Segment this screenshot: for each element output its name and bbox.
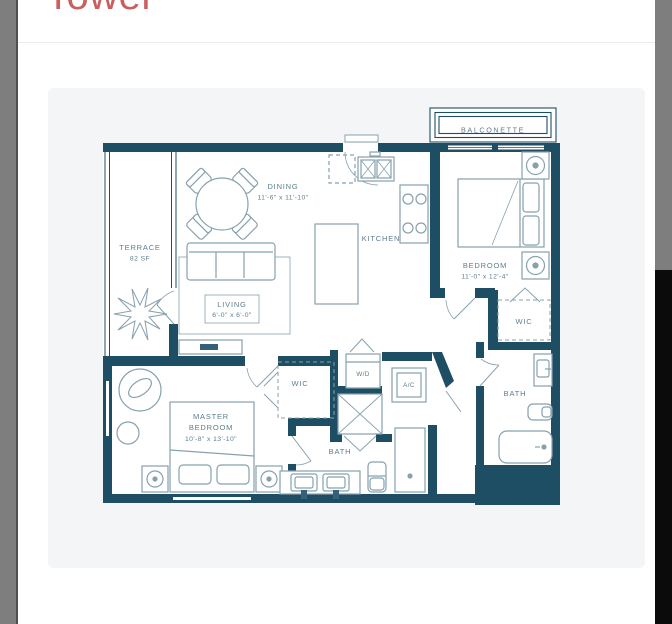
bed-icon bbox=[458, 179, 544, 247]
speaker-icon bbox=[522, 252, 549, 279]
wic-right-label: WIC bbox=[516, 317, 533, 326]
right-letterbox-bar-black bbox=[655, 270, 672, 624]
bathtub-icon bbox=[499, 431, 552, 463]
washer-dryer-label: W/D bbox=[356, 371, 370, 378]
master-bedroom-dims: 10'-8" x 13'-10" bbox=[185, 436, 237, 443]
floorplan-card: BALCONETTE bbox=[48, 88, 645, 568]
stove-icon bbox=[400, 185, 428, 243]
living-dims: 6'-0" x 6'-0" bbox=[212, 312, 252, 319]
bedroom-dims: 11'-0" x 12'-4" bbox=[461, 274, 508, 281]
wic-center-label: WIC bbox=[292, 379, 309, 388]
kitchen-label: KITCHEN bbox=[362, 234, 401, 243]
side-table-icon bbox=[117, 422, 139, 444]
left-letterbox-bar bbox=[0, 0, 18, 624]
ac-label: A/C bbox=[403, 382, 415, 389]
floorplan-image: BALCONETTE bbox=[48, 88, 645, 568]
terrace-area: 82 SF bbox=[130, 256, 150, 263]
kitchen-island bbox=[315, 224, 358, 304]
master-bedroom-label-1: MASTER bbox=[193, 412, 229, 421]
right-letterbox-bar-gray bbox=[655, 0, 672, 270]
master-bedroom-label-2: BEDROOM bbox=[189, 423, 233, 432]
sofa-icon bbox=[187, 243, 275, 280]
divider bbox=[18, 42, 655, 43]
bath-sink-icon bbox=[534, 354, 552, 386]
bedroom-label: BEDROOM bbox=[463, 261, 507, 270]
linen-closet-icon bbox=[338, 394, 382, 434]
page-title: Tower bbox=[46, 0, 155, 19]
dining-table-icon bbox=[196, 178, 248, 230]
toilet-icon bbox=[528, 404, 552, 420]
tv-console-icon bbox=[179, 340, 242, 354]
speaker-icon bbox=[522, 152, 549, 179]
balconette-label: BALCONETTE bbox=[461, 126, 525, 135]
terrace-label: TERRACE bbox=[119, 243, 160, 252]
dining-label: DINING bbox=[267, 182, 298, 191]
shower-icon bbox=[395, 428, 425, 492]
toilet-icon bbox=[368, 462, 386, 492]
page: Tower BALCONETTE bbox=[18, 0, 655, 624]
master-bath-label: BATH bbox=[329, 447, 352, 456]
armchair-icon bbox=[119, 369, 161, 411]
bath-label: BATH bbox=[504, 389, 527, 398]
nightstand-icon bbox=[142, 466, 168, 492]
living-label: LIVING bbox=[217, 300, 246, 309]
dining-dims: 11'-6" x 11'-10" bbox=[258, 195, 309, 202]
nightstand-icon bbox=[256, 466, 282, 492]
